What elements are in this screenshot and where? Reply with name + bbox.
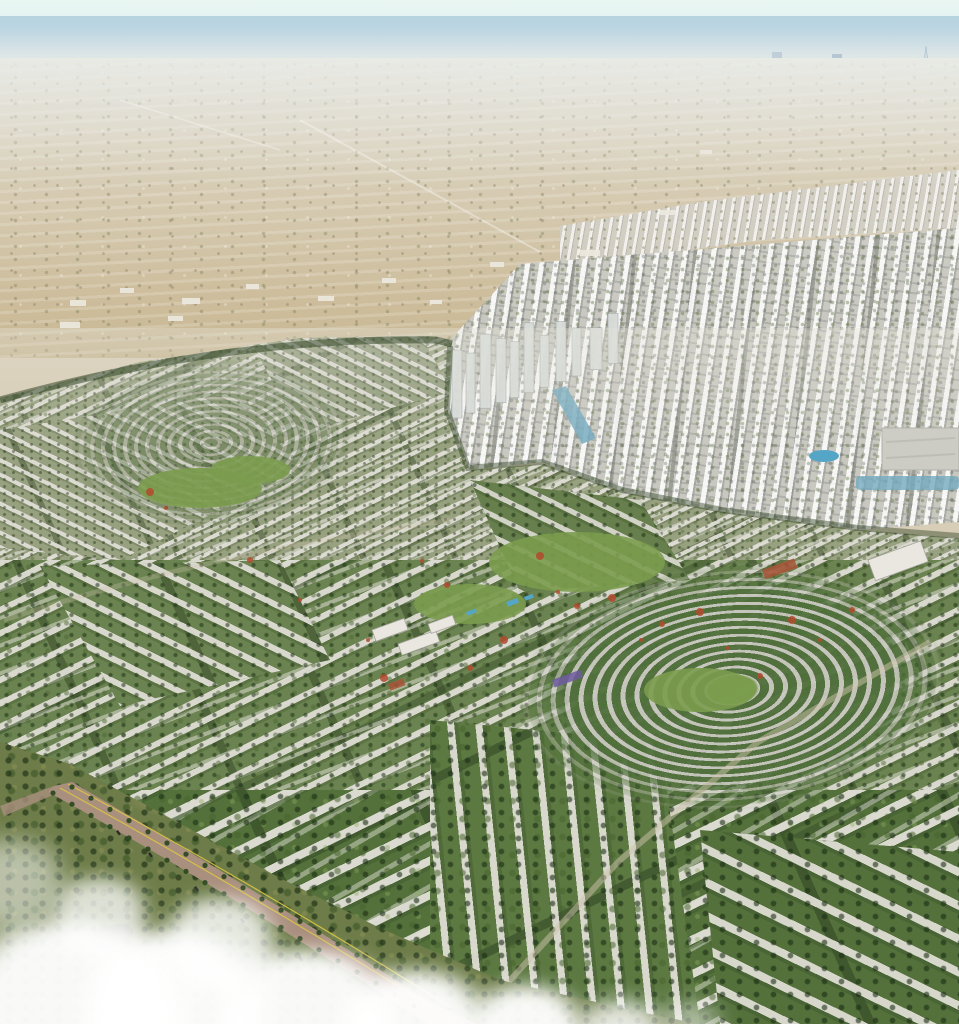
- palm-tree: [69, 784, 74, 789]
- palm-tree: [145, 846, 150, 851]
- car: [194, 886, 199, 891]
- car: [148, 852, 153, 857]
- palm-tree: [202, 863, 207, 868]
- cloud: [150, 898, 290, 993]
- palm-tree: [221, 874, 226, 879]
- palm-tree: [145, 829, 150, 834]
- palm-tree: [259, 896, 264, 901]
- palm-tree: [297, 919, 302, 924]
- palm-tree: [126, 818, 131, 823]
- palm-tree: [240, 885, 245, 890]
- palm-tree: [107, 824, 112, 829]
- palm-tree: [69, 802, 74, 807]
- palm-tree: [107, 807, 112, 812]
- forest-details: [0, 0, 959, 1024]
- palm-tree: [164, 858, 169, 863]
- palm-tree: [183, 852, 188, 857]
- palm-tree: [221, 891, 226, 896]
- palm-tree: [88, 796, 93, 801]
- palm-tree: [335, 941, 340, 946]
- palm-tree: [126, 835, 131, 840]
- palm-tree: [316, 930, 321, 935]
- palm-tree: [50, 790, 55, 795]
- palm-tree: [164, 840, 169, 845]
- palm-tree: [88, 813, 93, 818]
- palm-tree: [202, 880, 207, 885]
- palm-tree: [183, 869, 188, 874]
- aerial-community-render: [0, 0, 959, 1024]
- palm-tree: [297, 936, 302, 941]
- palm-tree: [278, 908, 283, 913]
